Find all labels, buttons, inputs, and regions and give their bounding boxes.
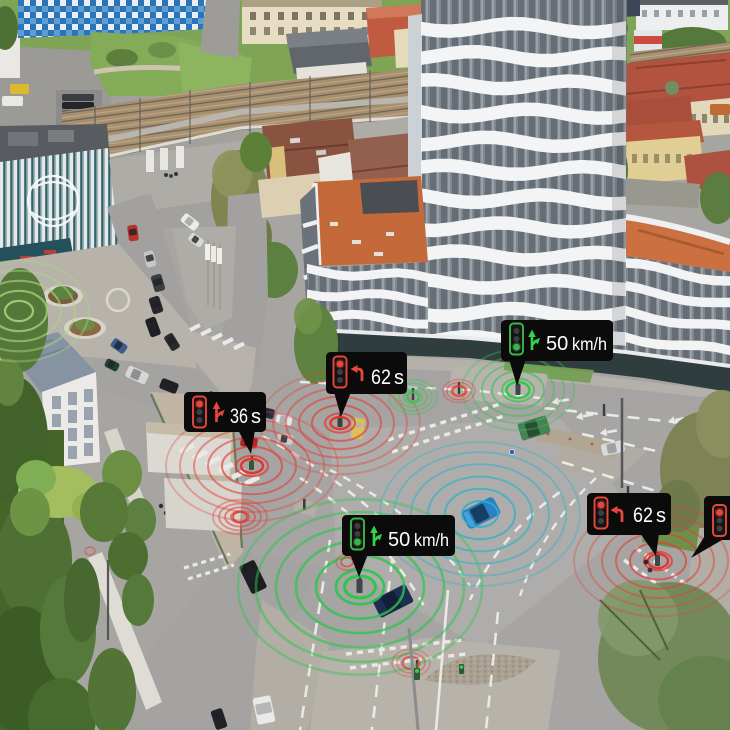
- svg-text:km/h: km/h: [414, 530, 449, 550]
- svg-text:s: s: [394, 367, 404, 389]
- svg-text:62: 62: [371, 366, 391, 389]
- svg-text:s: s: [251, 406, 261, 428]
- svg-text:62: 62: [633, 504, 653, 527]
- svg-text:50: 50: [546, 333, 568, 355]
- svg-text:36: 36: [230, 405, 248, 428]
- svg-text:km/h: km/h: [572, 334, 607, 354]
- svg-text:50: 50: [388, 529, 410, 551]
- svg-text:s: s: [656, 505, 666, 527]
